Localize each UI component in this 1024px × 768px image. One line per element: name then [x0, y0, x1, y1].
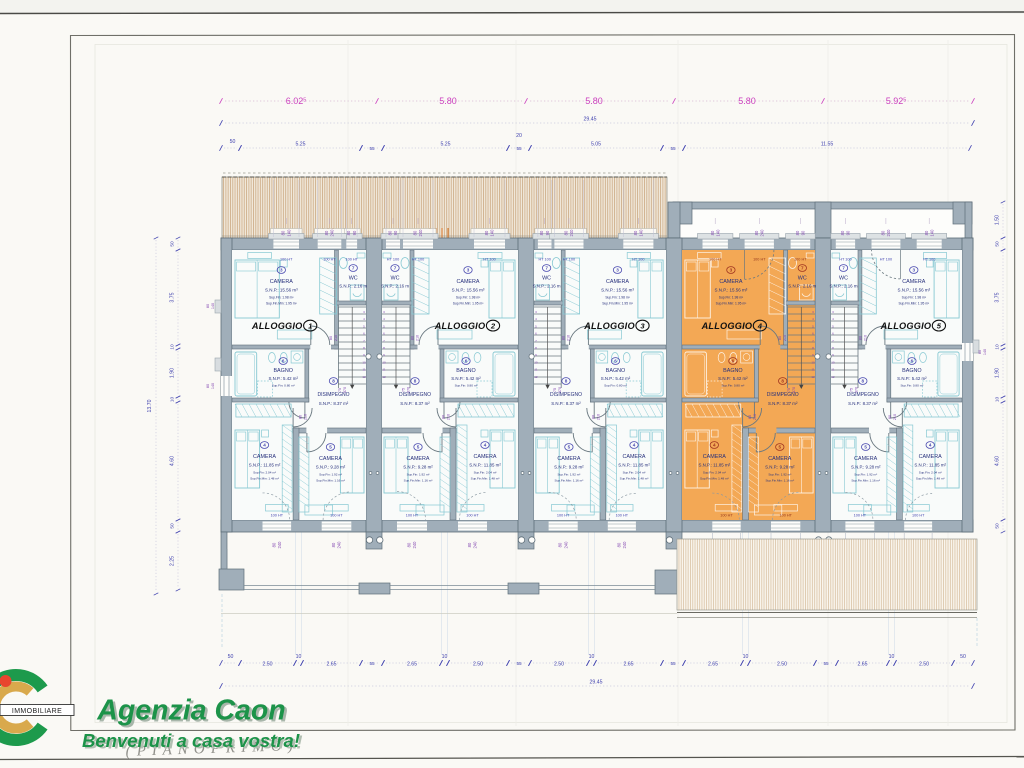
svg-text:80: 80: [329, 336, 333, 340]
svg-text:S.N.P.: 15.56 m³: S.N.P.: 15.56 m³: [601, 288, 634, 293]
svg-text:CAMERA: CAMERA: [919, 454, 942, 460]
svg-text:100 HT: 100 HT: [709, 258, 722, 262]
svg-text:13.70: 13.70: [147, 399, 153, 412]
svg-text:Sup.Fin: 0.80 m²: Sup.Fin: 0.80 m²: [272, 384, 295, 388]
svg-text:10: 10: [170, 397, 176, 403]
svg-text:210: 210: [597, 414, 601, 420]
svg-text:DISIMPEGNO: DISIMPEGNO: [550, 392, 582, 398]
svg-text:S.N.P.: 5.42 m²: S.N.P.: 5.42 m²: [897, 376, 927, 381]
svg-text:80: 80: [298, 415, 302, 419]
svg-text:S.N.P.: 15.56 m³: S.N.P.: 15.56 m³: [715, 288, 748, 293]
svg-text:Sup.Fin.Min: 1.48 m²: Sup.Fin.Min: 1.48 m²: [471, 477, 500, 481]
svg-text:80: 80: [346, 230, 351, 235]
svg-text:S.N.P.: 2.16 m: S.N.P.: 2.16 m: [788, 284, 816, 289]
svg-text:Sup.Fin: 0.80 m²: Sup.Fin: 0.80 m²: [455, 384, 478, 388]
svg-text:210: 210: [303, 414, 307, 420]
svg-text:80: 80: [206, 384, 210, 388]
svg-text:240: 240: [277, 541, 282, 549]
svg-text:55: 55: [516, 661, 522, 666]
svg-text:HT 100: HT 100: [880, 258, 892, 262]
svg-text:100 HT: 100 HT: [779, 514, 792, 518]
svg-text:Sup.Fin.Min: 1.95 m²: Sup.Fin.Min: 1.95 m²: [453, 302, 485, 306]
svg-text:100 HT: 100 HT: [345, 258, 358, 262]
svg-text:50: 50: [170, 523, 176, 529]
svg-text:6: 6: [732, 359, 735, 364]
svg-text:5.80: 5.80: [439, 96, 457, 106]
svg-text:5.05: 5.05: [591, 142, 601, 148]
svg-text:ALLOGGIO: ALLOGGIO: [434, 321, 486, 331]
svg-text:7: 7: [801, 266, 804, 271]
svg-text:1.50: 1.50: [995, 215, 1001, 225]
svg-text:100 HT: 100 HT: [616, 514, 629, 518]
svg-text:DISIMPEGNO: DISIMPEGNO: [399, 392, 431, 398]
svg-text:80: 80: [978, 350, 982, 354]
svg-text:4: 4: [633, 443, 636, 448]
svg-text:210: 210: [893, 414, 897, 420]
svg-text:Sup.Fin.Min: 1.95 m²: Sup.Fin.Min: 1.95 m²: [898, 302, 930, 306]
svg-text:11: 11: [382, 368, 385, 372]
svg-text:S.N.P.: 9.28 m²: S.N.P.: 9.28 m²: [851, 465, 881, 470]
svg-text:IMMOBILIARE: IMMOBILIARE: [12, 708, 62, 715]
svg-text:DISIMPEGNO: DISIMPEGNO: [847, 392, 879, 398]
svg-text:3: 3: [467, 268, 470, 273]
svg-text:210: 210: [783, 335, 787, 341]
svg-text:S.N.P.: 8.37 m²: S.N.P.: 8.37 m²: [319, 401, 349, 406]
svg-text:140: 140: [639, 229, 644, 237]
svg-text:Sup.Fin: 2.04 m²: Sup.Fin: 2.04 m²: [703, 471, 726, 475]
svg-text:S.N.P.: 9.28 m²: S.N.P.: 9.28 m²: [765, 465, 795, 470]
svg-text:50: 50: [960, 654, 966, 660]
svg-text:55: 55: [516, 146, 522, 151]
svg-text:HT 100: HT 100: [839, 258, 851, 262]
svg-text:Sup.Fin.Min: 1.16 m²: Sup.Fin.Min: 1.16 m²: [316, 479, 345, 483]
svg-text:Benvenuti a casa vostra!: Benvenuti a casa vostra!: [82, 730, 300, 751]
svg-text:50: 50: [995, 241, 1001, 247]
svg-text:90: 90: [846, 230, 851, 235]
svg-text:80: 80: [710, 230, 715, 235]
svg-text:100 HT: 100 HT: [912, 514, 925, 518]
svg-text:CAMERA: CAMERA: [456, 279, 479, 285]
svg-text:Sup.Fin.Min: 1.48 m²: Sup.Fin.Min: 1.48 m²: [620, 477, 649, 481]
svg-text:12: 12: [362, 375, 366, 379]
svg-text:1.90: 1.90: [995, 368, 1001, 378]
svg-text:CAMERA: CAMERA: [622, 454, 645, 460]
svg-text:HT 100: HT 100: [563, 258, 575, 262]
svg-text:4: 4: [713, 443, 716, 448]
svg-text:50: 50: [230, 139, 236, 145]
svg-text:Sup.Fin.Min: 1.48 m²: Sup.Fin.Min: 1.48 m²: [250, 477, 279, 481]
svg-text:240: 240: [563, 541, 568, 549]
svg-text:Sup.Fin: 1.92 m²: Sup.Fin: 1.92 m²: [854, 473, 877, 477]
svg-text:7: 7: [394, 266, 397, 271]
svg-text:100 HT: 100 HT: [557, 514, 570, 518]
svg-text:11: 11: [831, 368, 834, 372]
svg-text:240: 240: [569, 229, 574, 237]
svg-text:80: 80: [880, 230, 885, 235]
svg-text:S.N.P.: 2.16 m: S.N.P.: 2.16 m: [381, 284, 409, 289]
svg-text:8: 8: [781, 379, 784, 384]
svg-text:Sup.Fin: 2.04 m²: Sup.Fin: 2.04 m²: [919, 471, 942, 475]
svg-text:CAMERA: CAMERA: [270, 279, 293, 285]
svg-text:12: 12: [534, 375, 538, 379]
svg-text:11: 11: [362, 368, 365, 372]
svg-text:7: 7: [545, 266, 548, 271]
svg-text:5: 5: [864, 445, 867, 450]
svg-text:S.N.P.: 15.56 m³: S.N.P.: 15.56 m³: [452, 288, 485, 293]
svg-text:2.65: 2.65: [857, 662, 867, 668]
svg-text:ALLOGGIO: ALLOGGIO: [583, 321, 635, 331]
svg-text:WC: WC: [349, 276, 358, 282]
svg-text:20: 20: [516, 133, 522, 139]
svg-text:Sup.Fin: 1.98 m²: Sup.Fin: 1.98 m²: [269, 296, 294, 300]
svg-text:S.N.P.: 11.85 m²: S.N.P.: 11.85 m²: [469, 463, 501, 468]
svg-text:CAMERA: CAMERA: [473, 454, 496, 460]
svg-text:Sup.Fin: 1.98 m²: Sup.Fin: 1.98 m²: [902, 296, 927, 300]
svg-text:3: 3: [913, 268, 916, 273]
svg-text:CAMERA: CAMERA: [768, 456, 791, 462]
svg-text:210: 210: [753, 414, 757, 420]
svg-text:210: 210: [447, 414, 451, 420]
svg-text:7: 7: [352, 266, 355, 271]
svg-text:CAMERA: CAMERA: [253, 454, 276, 460]
svg-text:8: 8: [414, 379, 417, 384]
svg-text:80: 80: [388, 230, 393, 235]
svg-text:S.N.P.: 11.85 m²: S.N.P.: 11.85 m²: [618, 463, 650, 468]
svg-text:S.N.P.: 2.16 m: S.N.P.: 2.16 m: [339, 284, 367, 289]
svg-text:140: 140: [211, 303, 215, 309]
svg-text:100 HT: 100 HT: [330, 514, 343, 518]
svg-text:CAMERA: CAMERA: [902, 279, 925, 285]
svg-text:CAMERA: CAMERA: [719, 279, 742, 285]
svg-text:4.60: 4.60: [995, 456, 1001, 466]
svg-text:S.N.P.: 11.85 m²: S.N.P.: 11.85 m²: [914, 463, 946, 468]
svg-text:11: 11: [811, 368, 814, 372]
svg-text:50: 50: [170, 241, 176, 247]
svg-text:HT 100: HT 100: [483, 258, 495, 262]
svg-text:Sup.Fin: 0.80 m²: Sup.Fin: 0.80 m²: [900, 384, 923, 388]
svg-text:210: 210: [416, 335, 420, 341]
svg-text:80: 80: [562, 336, 566, 340]
svg-text:5: 5: [568, 445, 571, 450]
svg-text:Sup.Fin: 0.80 m²: Sup.Fin: 0.80 m²: [721, 384, 744, 388]
svg-text:12: 12: [831, 375, 835, 379]
svg-text:Sup.Fin: 2.04 m²: Sup.Fin: 2.04 m²: [253, 471, 276, 475]
svg-text:50: 50: [228, 654, 234, 660]
svg-text:BAGNO: BAGNO: [456, 368, 475, 374]
svg-text:HT 100: HT 100: [923, 258, 935, 262]
svg-text:240: 240: [418, 229, 423, 237]
svg-text:80: 80: [748, 415, 752, 419]
svg-text:S.N.P.: 11.85 m²: S.N.P.: 11.85 m²: [249, 463, 281, 468]
svg-text:10: 10: [382, 360, 386, 364]
svg-text:100 HT: 100 HT: [854, 514, 867, 518]
svg-text:HT 100: HT 100: [632, 258, 644, 262]
svg-text:Sup.Fin: 1.92 m²: Sup.Fin: 1.92 m²: [557, 473, 580, 477]
svg-text:2.65: 2.65: [407, 662, 417, 668]
svg-text:4: 4: [757, 322, 763, 331]
svg-text:Sup.Fin.Min: 1.16 m²: Sup.Fin.Min: 1.16 m²: [765, 479, 794, 483]
svg-text:10: 10: [743, 654, 749, 660]
svg-text:80: 80: [271, 542, 276, 547]
svg-text:80: 80: [281, 230, 286, 235]
svg-text:BAGNO: BAGNO: [723, 368, 742, 374]
svg-text:80: 80: [407, 542, 412, 547]
svg-text:Sup.Fin: 2.04 m²: Sup.Fin: 2.04 m²: [474, 471, 497, 475]
svg-text:80: 80: [616, 542, 621, 547]
svg-text:80: 80: [888, 415, 892, 419]
svg-text:55: 55: [823, 661, 829, 666]
svg-text:ALLOGGIO: ALLOGGIO: [251, 321, 303, 331]
svg-text:8: 8: [332, 379, 335, 384]
svg-text:S.N.P.: 5.42 m²: S.N.P.: 5.42 m²: [268, 376, 298, 381]
svg-text:CAMERA: CAMERA: [703, 454, 726, 460]
svg-text:S.N.P.: 5.42 m²: S.N.P.: 5.42 m²: [718, 376, 748, 381]
svg-text:5.25: 5.25: [295, 142, 305, 148]
svg-text:6: 6: [911, 359, 914, 364]
svg-text:4.60: 4.60: [170, 456, 176, 466]
svg-text:Agenzia Caon: Agenzia Caon: [96, 695, 285, 727]
svg-text:100 HT: 100 HT: [406, 514, 419, 518]
svg-text:29.45: 29.45: [584, 117, 597, 123]
svg-text:Sup.Fin.Min: 1.16 m²: Sup.Fin.Min: 1.16 m²: [555, 479, 584, 483]
svg-text:2.65: 2.65: [326, 662, 336, 668]
svg-text:10: 10: [831, 360, 835, 364]
svg-text:210: 210: [567, 335, 571, 341]
svg-text:240: 240: [412, 541, 417, 549]
svg-text:CAMERA: CAMERA: [557, 456, 580, 462]
svg-text:CAMERA: CAMERA: [606, 279, 629, 285]
svg-text:S.N.P.: 8.37 m²: S.N.P.: 8.37 m²: [400, 401, 430, 406]
svg-text:100 HT: 100 HT: [794, 258, 807, 262]
svg-text:80: 80: [840, 230, 845, 235]
svg-text:80: 80: [592, 415, 596, 419]
svg-text:3: 3: [280, 268, 283, 273]
svg-text:210: 210: [863, 335, 867, 341]
svg-text:140: 140: [930, 229, 935, 237]
svg-text:140: 140: [286, 229, 291, 237]
svg-text:6: 6: [465, 359, 468, 364]
svg-text:140: 140: [490, 229, 495, 237]
svg-text:2.50: 2.50: [554, 662, 564, 668]
svg-text:6.025: 6.025: [286, 96, 307, 106]
svg-text:6: 6: [614, 359, 617, 364]
svg-text:Sup.Fin.Min: 1.48 m²: Sup.Fin.Min: 1.48 m²: [700, 477, 729, 481]
svg-text:100 HT: 100 HT: [753, 258, 766, 262]
svg-text:Sup.Fin.Min: 1.95 m²: Sup.Fin.Min: 1.95 m²: [266, 302, 298, 306]
svg-text:Sup.Fin.Min: 1.95 m²: Sup.Fin.Min: 1.95 m²: [716, 302, 748, 306]
svg-text:10: 10: [170, 344, 176, 350]
svg-text:CAMERA: CAMERA: [406, 456, 429, 462]
svg-text:80: 80: [324, 230, 329, 235]
svg-text:Sup.Fin: 1.98 m²: Sup.Fin: 1.98 m²: [456, 296, 481, 300]
svg-text:80: 80: [467, 542, 472, 547]
svg-text:HT 100: HT 100: [539, 258, 551, 262]
svg-text:10: 10: [995, 344, 1001, 350]
svg-text:Sup.Fin: 1.92 m²: Sup.Fin: 1.92 m²: [407, 473, 430, 477]
svg-text:S.N.P.: 2.16 m: S.N.P.: 2.16 m: [533, 284, 561, 289]
svg-text:WC: WC: [542, 276, 551, 282]
svg-text:4: 4: [484, 443, 487, 448]
svg-text:100 HT: 100 HT: [466, 514, 479, 518]
svg-text:80: 80: [539, 230, 544, 235]
svg-text:1.90: 1.90: [170, 368, 176, 378]
svg-text:240: 240: [337, 541, 342, 549]
svg-text:100 HT: 100 HT: [280, 258, 293, 262]
svg-text:80: 80: [795, 230, 800, 235]
svg-text:2.65: 2.65: [623, 662, 633, 668]
svg-text:140: 140: [716, 229, 721, 237]
svg-text:55: 55: [369, 661, 375, 666]
svg-text:5: 5: [329, 445, 332, 450]
svg-text:7: 7: [842, 266, 845, 271]
svg-text:2.65: 2.65: [708, 662, 718, 668]
svg-text:Sup.Fin: 1.98 m²: Sup.Fin: 1.98 m²: [719, 296, 744, 300]
svg-text:4: 4: [929, 443, 932, 448]
svg-text:4: 4: [263, 443, 266, 448]
svg-text:DISIMPEGNO: DISIMPEGNO: [767, 392, 799, 398]
svg-text:Sup.Fin: 0.80 m²: Sup.Fin: 0.80 m²: [604, 384, 627, 388]
svg-text:55: 55: [369, 146, 375, 151]
svg-text:S.N.P.: 2.16 m: S.N.P.: 2.16 m: [830, 284, 858, 289]
svg-text:240: 240: [886, 229, 891, 237]
svg-text:240: 240: [760, 229, 765, 237]
svg-text:240: 240: [622, 541, 627, 549]
svg-text:Sup.Fin.Min: 1.16 m²: Sup.Fin.Min: 1.16 m²: [404, 479, 433, 483]
svg-text:80: 80: [484, 230, 489, 235]
svg-text:80: 80: [754, 230, 759, 235]
svg-text:ALLOGGIO: ALLOGGIO: [701, 321, 753, 331]
svg-text:80: 80: [558, 542, 563, 547]
svg-text:S.N.P.: 8.37 m²: S.N.P.: 8.37 m²: [848, 401, 878, 406]
svg-text:90: 90: [352, 230, 357, 235]
svg-text:90: 90: [801, 230, 806, 235]
svg-text:80: 80: [206, 304, 210, 308]
svg-text:S.N.P.: 5.42 m²: S.N.P.: 5.42 m²: [451, 376, 481, 381]
svg-text:5.80: 5.80: [738, 96, 756, 106]
svg-text:8: 8: [565, 379, 568, 384]
svg-text:S.N.P.: 15.56 m³: S.N.P.: 15.56 m³: [265, 288, 298, 293]
svg-text:5: 5: [779, 445, 782, 450]
svg-text:10: 10: [442, 654, 448, 660]
svg-text:100 HT: 100 HT: [271, 514, 284, 518]
svg-text:90: 90: [393, 230, 398, 235]
svg-text:80: 80: [563, 230, 568, 235]
svg-text:CAMERA: CAMERA: [854, 456, 877, 462]
svg-text:12: 12: [382, 375, 386, 379]
svg-text:10: 10: [589, 654, 595, 660]
svg-text:S.N.P.: 9.28 m²: S.N.P.: 9.28 m²: [403, 465, 433, 470]
svg-text:3.75: 3.75: [995, 292, 1001, 302]
svg-text:10: 10: [362, 360, 366, 364]
svg-text:100 HT: 100 HT: [323, 258, 336, 262]
svg-text:WC: WC: [391, 276, 400, 282]
svg-text:BAGNO: BAGNO: [606, 368, 625, 374]
svg-text:1: 1: [308, 322, 312, 331]
svg-text:80: 80: [924, 230, 929, 235]
svg-text:S.N.P.: 15.56 m³: S.N.P.: 15.56 m³: [897, 288, 930, 293]
svg-text:80: 80: [778, 336, 782, 340]
svg-text:100 HT: 100 HT: [720, 514, 733, 518]
svg-text:S.N.P.: 8.37 m²: S.N.P.: 8.37 m²: [768, 401, 798, 406]
svg-text:Sup.Fin: 1.98 m²: Sup.Fin: 1.98 m²: [605, 296, 630, 300]
svg-text:Sup.Fin.Min: 1.95 m²: Sup.Fin.Min: 1.95 m²: [602, 302, 634, 306]
svg-text:CAMERA: CAMERA: [319, 456, 342, 462]
svg-text:Sup.Fin: 2.04 m²: Sup.Fin: 2.04 m²: [623, 471, 646, 475]
svg-text:2.50: 2.50: [473, 662, 483, 668]
svg-text:80: 80: [633, 230, 638, 235]
svg-text:3.75: 3.75: [170, 292, 176, 302]
svg-text:80: 80: [442, 415, 446, 419]
svg-text:S.N.P.: 5.42 m²: S.N.P.: 5.42 m²: [601, 376, 631, 381]
svg-text:140: 140: [211, 383, 215, 389]
svg-text:3: 3: [730, 268, 733, 273]
svg-text:S.N.P.: 9.28 m²: S.N.P.: 9.28 m²: [316, 465, 346, 470]
svg-text:2.50: 2.50: [919, 662, 929, 668]
svg-text:80: 80: [858, 336, 862, 340]
svg-text:50: 50: [995, 523, 1001, 529]
svg-text:80: 80: [331, 542, 336, 547]
svg-text:Sup.Fin.Min: 1.48 m²: Sup.Fin.Min: 1.48 m²: [916, 477, 945, 481]
svg-text:5: 5: [417, 445, 420, 450]
svg-text:S.N.P.: 8.37 m²: S.N.P.: 8.37 m²: [551, 401, 581, 406]
svg-text:2: 2: [490, 322, 496, 331]
svg-text:BAGNO: BAGNO: [273, 368, 292, 374]
svg-text:DISIMPEGNO: DISIMPEGNO: [318, 392, 350, 398]
svg-text:11: 11: [534, 368, 537, 372]
svg-text:5.25: 5.25: [440, 142, 450, 148]
svg-text:11.55: 11.55: [821, 142, 834, 148]
svg-text:S.N.P.: 9.28 m²: S.N.P.: 9.28 m²: [554, 465, 584, 470]
svg-text:10: 10: [296, 654, 302, 660]
svg-text:2.50: 2.50: [262, 662, 272, 668]
svg-text:10: 10: [889, 654, 895, 660]
svg-text:HT 100: HT 100: [412, 258, 424, 262]
svg-text:80: 80: [413, 230, 418, 235]
svg-text:WC: WC: [798, 276, 807, 282]
svg-text:10: 10: [811, 360, 815, 364]
svg-text:ALLOGGIO: ALLOGGIO: [880, 321, 932, 331]
svg-text:2.25: 2.25: [170, 556, 176, 566]
svg-text:3: 3: [616, 268, 619, 273]
svg-text:HT 100: HT 100: [387, 258, 399, 262]
svg-text:8: 8: [862, 379, 865, 384]
svg-text:Sup.Fin: 1.92 m²: Sup.Fin: 1.92 m²: [768, 473, 791, 477]
svg-text:6: 6: [282, 359, 285, 364]
svg-text:140: 140: [983, 349, 987, 355]
svg-text:240: 240: [330, 229, 335, 237]
svg-text:80: 80: [411, 336, 415, 340]
svg-text:10: 10: [995, 397, 1001, 403]
svg-text:55: 55: [670, 146, 676, 151]
svg-text:BAGNO: BAGNO: [902, 368, 921, 374]
svg-text:Sup.Fin: 1.92 m²: Sup.Fin: 1.92 m²: [319, 473, 342, 477]
svg-text:WC: WC: [839, 276, 848, 282]
svg-text:5.925: 5.925: [886, 96, 907, 106]
svg-text:210: 210: [334, 335, 338, 341]
svg-text:55: 55: [670, 661, 676, 666]
svg-text:Sup.Fin.Min: 1.16 m²: Sup.Fin.Min: 1.16 m²: [851, 479, 880, 483]
svg-text:29.45: 29.45: [590, 680, 603, 686]
svg-text:5.80: 5.80: [585, 96, 603, 106]
svg-text:240: 240: [473, 541, 478, 549]
svg-text:10: 10: [534, 360, 538, 364]
svg-text:12: 12: [811, 375, 815, 379]
svg-text:S.N.P.: 11.85 m²: S.N.P.: 11.85 m²: [699, 463, 731, 468]
svg-text:2.50: 2.50: [777, 662, 787, 668]
